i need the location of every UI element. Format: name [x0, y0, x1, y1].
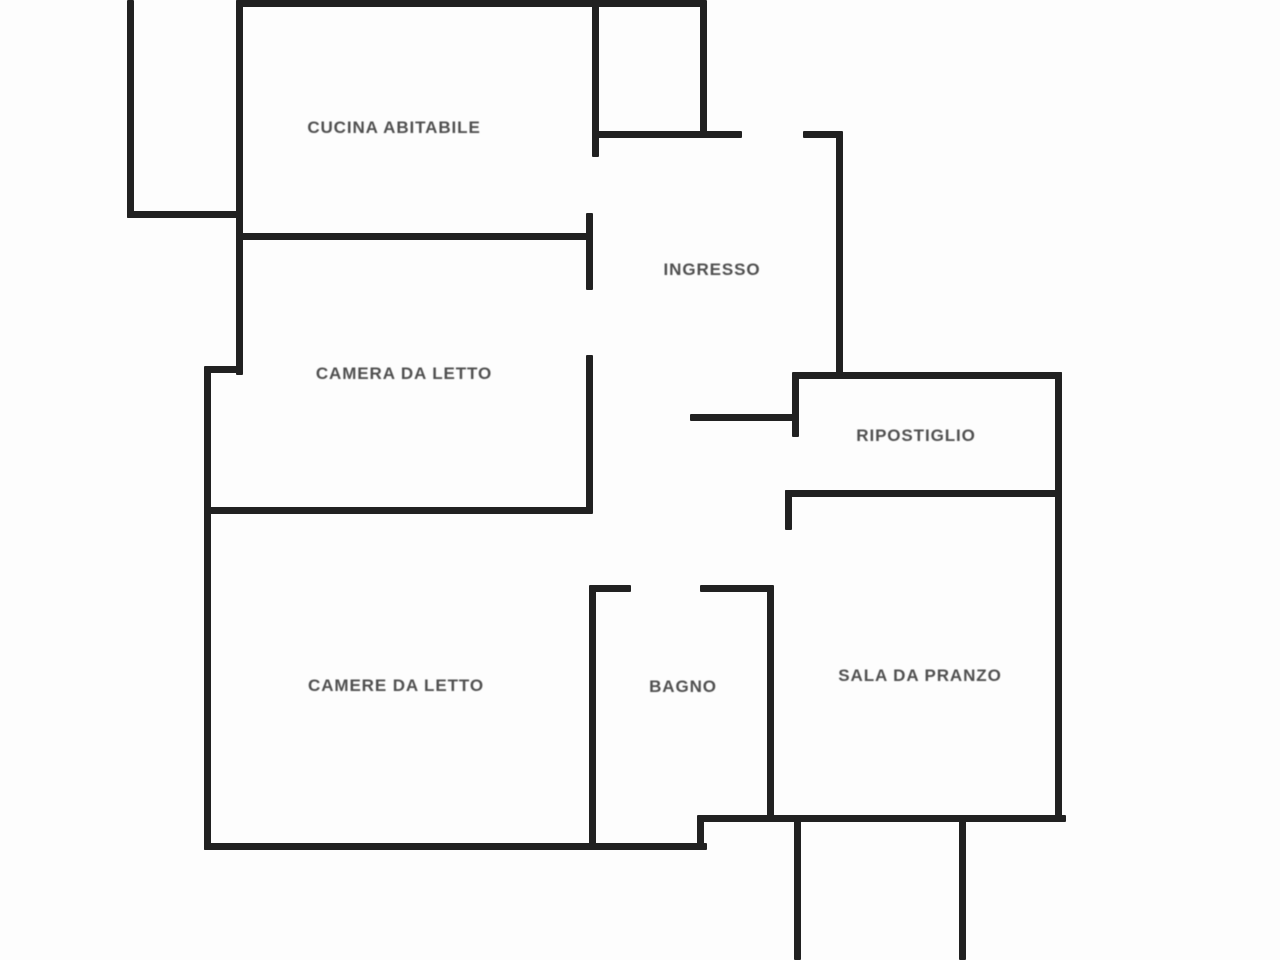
wall-camere-bottom: [204, 843, 707, 850]
wall-ripostiglio-top: [792, 372, 1062, 379]
wall-ingresso-left-upper: [586, 213, 593, 290]
room-label-camere-da-letto: CAMERE DA LETTO: [308, 676, 484, 696]
wall-ripostiglio-left: [792, 375, 799, 437]
wall-kitchen-left: [236, 0, 243, 375]
room-label-cucina-abitabile: CUCINA ABITABILE: [307, 118, 480, 138]
wall-entry-square-bottom: [595, 131, 742, 138]
wall-bedrooms-left: [204, 368, 211, 850]
room-label-camera-da-letto: CAMERA DA LETTO: [316, 364, 492, 384]
wall-top-outer: [236, 0, 706, 7]
wall-camere-right-bagno-left: [589, 588, 596, 850]
wall-below-stub-left: [794, 818, 801, 960]
wall-bagno-top-right-tick: [700, 585, 774, 592]
wall-hall-bottom-tick: [690, 414, 799, 421]
wall-camera-bottom-divider: [204, 507, 593, 514]
wall-sala-bagno-bottom: [700, 815, 1066, 822]
wall-bagno-right-sala-left: [767, 588, 774, 822]
room-label-sala-da-pranzo: SALA DA PRANZO: [838, 666, 1001, 686]
room-label-bagno: BAGNO: [649, 677, 717, 697]
wall-sala-left-jamb: [785, 490, 792, 530]
floor-plan: CUCINA ABITABILEINGRESSOCAMERA DA LETTOR…: [0, 0, 1280, 960]
wall-outer-left-top: [127, 0, 134, 218]
wall-ripostiglio-bottom: [785, 490, 1062, 497]
room-label-ingresso: INGRESSO: [664, 260, 761, 280]
wall-ingresso-right: [836, 135, 843, 378]
wall-entry-square-right: [700, 0, 707, 133]
wall-outer-right: [1055, 372, 1062, 822]
wall-ingresso-left-lower: [586, 355, 593, 512]
wall-kitchen-bottom: [236, 233, 593, 240]
room-label-ripostiglio: RIPOSTIGLIO: [856, 426, 975, 446]
wall-below-stub-right: [959, 818, 966, 960]
wall-balcony-bottom: [127, 211, 243, 218]
